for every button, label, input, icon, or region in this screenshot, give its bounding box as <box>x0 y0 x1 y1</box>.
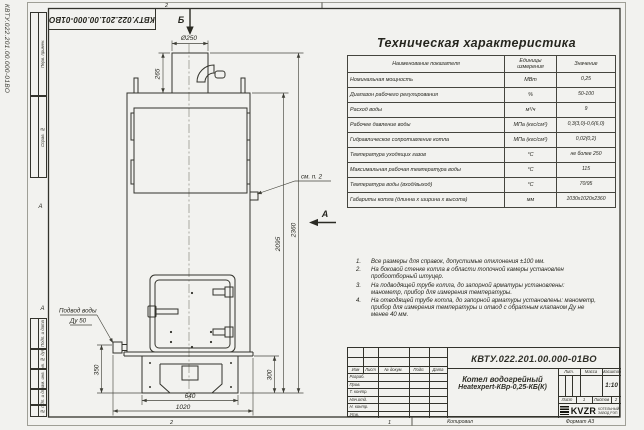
tb-lit-label: Лит. <box>558 368 580 375</box>
spec-units: °С <box>505 148 557 163</box>
spec-value: 0,3(3,0)-0,6(6,0) <box>557 118 616 133</box>
tb-row-razrab: Разраб. <box>348 373 380 381</box>
spec-row: Номинальная мощностьМВт0,25 <box>348 73 616 88</box>
zone-number-top: 2 <box>164 3 168 9</box>
note-item: 2.На боковой стенке котла в области топо… <box>356 267 596 281</box>
view-arrows <box>186 9 336 226</box>
zone-letter-low: А <box>40 306 45 312</box>
spec-row: Температура уходящих газов°Сне более 250 <box>348 148 616 163</box>
margin-field-label: Перв. примен. <box>39 13 46 95</box>
leader-lines <box>60 181 331 343</box>
upper-panel <box>134 108 247 193</box>
spec-name: Температура воды (вход/выход) <box>348 178 505 193</box>
boiler-body <box>127 93 250 352</box>
base-opening <box>160 364 222 393</box>
tb-col-data: Дата <box>429 366 447 373</box>
spec-name: Максимальная рабочая температура воды <box>348 163 505 178</box>
spec-units: мм <box>505 193 557 208</box>
spec-units: °С <box>505 163 557 178</box>
margin-field-label: Инв. № подл. <box>39 406 46 416</box>
spec-value: не более 250 <box>557 148 616 163</box>
door-hinge-bottom <box>213 329 225 335</box>
note-number: 3. <box>356 283 371 297</box>
kvzr-logo-icon <box>560 406 569 415</box>
spec-table-title: Техническая характеристика <box>347 36 606 50</box>
chimney <box>172 53 208 93</box>
base <box>142 356 238 393</box>
tb-sheets-value: 2 <box>611 396 621 403</box>
tb-col-list: Лист <box>363 366 378 373</box>
spec-units: МВт <box>505 73 557 88</box>
spec-units: °С <box>505 178 557 193</box>
rotated-doc-number: КВТУ.022.201.00.000-01ВО <box>49 15 155 24</box>
tb-row-nkontr: Н. контр. <box>348 403 380 411</box>
boiler-front-view <box>113 53 258 393</box>
spec-name: Гидравлическое сопротивление котла <box>348 133 505 148</box>
dim-chimney-height: 265 <box>155 68 162 80</box>
note-item: 3.На подводящей трубе котла, до запорной… <box>356 283 596 297</box>
notes-section: 1.Все размеры для справок, допустимые от… <box>356 259 596 321</box>
drawing-sheet: Ø250 265 2095 2360 350 300 640 1020 см. … <box>0 0 644 430</box>
tb-product-line2: Heatexpert-КВр-0,25-КБ(К) <box>458 384 547 393</box>
margin-field-label: Взам. инв. № <box>39 370 46 388</box>
spec-row: Температура воды (вход/выход)°С70/95 <box>348 178 616 193</box>
water-inlet-pipe <box>122 345 127 351</box>
tb-row-utv: Утв. <box>348 411 380 419</box>
spec-table: Наименование показателя Единицы измерени… <box>347 55 616 208</box>
spec-value: 0,02(0,2) <box>557 133 616 148</box>
dim-body-height: 2095 <box>275 236 282 252</box>
spec-value: 9 <box>557 103 616 118</box>
spec-value: 1030х1020х2360 <box>557 193 616 208</box>
tb-scale-value: 1:10 <box>602 375 621 396</box>
note-item: 4.На отводящей трубе котла, до запорной … <box>356 298 596 320</box>
copied-label: Копировал <box>420 419 500 425</box>
title-block: Изм Лист № докум. Подп. Дата Разраб. Про… <box>347 347 620 417</box>
extension-lines <box>97 41 304 416</box>
format-label: Формат А3 <box>540 419 620 425</box>
spec-name: Рабочее давление воды <box>348 118 505 133</box>
note-text: На подводящей трубе котла, до запорной а… <box>371 283 596 297</box>
note-text: На отводящей трубе котла, до запорной ар… <box>371 298 596 320</box>
tb-product-name: Котел водогрейный Heatexpert-КВр-0,25-КБ… <box>447 368 558 400</box>
zone-number-bottom-right: 1 <box>388 420 391 426</box>
note-text: На боковой стенке котла в области топочн… <box>371 267 596 281</box>
dim-base-width: 640 <box>185 393 196 400</box>
note-number: 2. <box>356 267 371 281</box>
margin-field-inv-dubl: Инв. № дубл. <box>30 349 47 369</box>
chimney-elbow <box>197 65 214 82</box>
tb-sheets-label: Листов <box>592 396 611 403</box>
lifting-lug-left <box>134 78 138 93</box>
spec-value: 50-100 <box>557 88 616 103</box>
spec-name: Номинальная мощность <box>348 73 505 88</box>
spec-name: Диапазон рабочего регулирования <box>348 88 505 103</box>
margin-field-label: Подп. и дата <box>39 390 46 404</box>
side-doc-number: КВТУ.022.201.00.000-01ВО <box>3 4 10 93</box>
door-hinge-top <box>213 289 225 295</box>
spec-col-units: Единицы измерения <box>505 56 557 73</box>
door-hinge-bottom <box>225 327 233 337</box>
spec-value: 0,25 <box>557 73 616 88</box>
note-number: 4. <box>356 298 371 320</box>
rotated-doc-number-box: КВТУ.022.201.00.000-01ВО <box>48 8 156 30</box>
margin-field-sprav-no: Справ. № <box>30 96 47 178</box>
margin-field-inv-podl: Инв. № подл. <box>30 405 47 417</box>
spec-units: м³/ч <box>505 103 557 118</box>
spec-value: 70/95 <box>557 178 616 193</box>
spec-units: МПа (кгс/см²) <box>505 118 557 133</box>
spec-row: Гидравлическое сопротивление котлаМПа (к… <box>348 133 616 148</box>
spec-col-name: Наименование показателя <box>348 56 505 73</box>
note-text: Все размеры для справок, допустимые откл… <box>371 259 596 266</box>
bolt-dots <box>149 292 232 388</box>
spec-row: Габариты котла (длинна х ширина х высота… <box>348 193 616 208</box>
tb-col-docnum: № докум. <box>378 366 409 373</box>
blower-door <box>182 366 198 380</box>
note-number: 1. <box>356 259 371 266</box>
tb-sheet-label: Лист <box>558 396 576 403</box>
margin-field-vzam-inv: Взам. инв. № <box>30 369 47 389</box>
elbow-knob <box>215 71 225 78</box>
dim-boiler-width: 1020 <box>176 404 191 411</box>
spec-name: Расход воды <box>348 103 505 118</box>
margin-field-podp-data-1: Подп. и дата <box>30 318 47 349</box>
zone-number-bottom-left: 2 <box>169 420 173 426</box>
spec-name: Габариты котла (длинна х ширина х высота… <box>348 193 505 208</box>
dim-base-height: 300 <box>267 369 274 380</box>
spec-units: МПа (кгс/см²) <box>505 133 557 148</box>
zone-letter-mid: А <box>38 204 43 210</box>
panel-hinge <box>131 113 134 140</box>
skirt <box>124 352 253 356</box>
tb-product-line1: Котел водогрейный <box>462 375 543 385</box>
tb-sheet-value: 1 <box>576 396 592 403</box>
spec-table-section: Техническая характеристика Наименование … <box>347 36 606 208</box>
tb-scale-label: Масштаб <box>602 368 621 375</box>
tb-mass-label: Масса <box>580 368 602 375</box>
door-handle <box>156 309 178 314</box>
spec-units: % <box>505 88 557 103</box>
kvzr-logo-text: KVZR <box>571 406 596 416</box>
door-hinge-top <box>225 287 233 297</box>
note-item: 1.Все размеры для справок, допустимые от… <box>356 259 596 266</box>
tb-row-tkontr: Т. контр. <box>348 388 380 396</box>
dim-total-height: 2360 <box>291 222 298 238</box>
spec-row: Расход водым³/ч9 <box>348 103 616 118</box>
company-name-line1: КОТЕЛЬНЫЙ <box>598 407 619 411</box>
margin-field-perv-primen: Перв. примен. <box>30 12 47 96</box>
water-inlet-fitting <box>113 342 122 353</box>
panel-hinge <box>247 113 250 140</box>
margin-field-label: Подп. и дата <box>39 319 46 348</box>
dim-chimney-diameter: Ø250 <box>180 35 197 42</box>
sampling-fitting <box>250 192 258 200</box>
spec-name: Температура уходящих газов <box>348 148 505 163</box>
spec-value: 115 <box>557 163 616 178</box>
lifting-lug-right <box>241 78 245 93</box>
view-label-b: Б <box>178 15 185 25</box>
callout-see-note: см. п. 2 <box>301 174 323 181</box>
panel-hinge <box>247 160 250 184</box>
spec-row: Рабочее давление водыМПа (кгс/см²)0,3(3,… <box>348 118 616 133</box>
tb-row-nachotd: Нач.отд. <box>348 396 380 404</box>
company-name-line2: ЗАВОД РЭП <box>598 411 619 415</box>
callout-water-supply: Подвод воды <box>59 308 97 315</box>
panel-hinge <box>131 160 134 184</box>
company-name: КОТЕЛЬНЫЙ ЗАВОД РЭП <box>598 407 619 415</box>
tb-col-izm: Изм <box>348 366 363 373</box>
spec-col-value: Значение <box>557 56 616 73</box>
company-logo-cell: KVZR КОТЕЛЬНЫЙ ЗАВОД РЭП <box>558 403 621 418</box>
tb-row-prov: Пров. <box>348 381 380 389</box>
tb-col-podp: Подп. <box>409 366 429 373</box>
margin-field-podp-data-2: Подп. и дата <box>30 389 47 405</box>
view-label-a: А <box>321 209 329 219</box>
margin-field-label: Инв. № дубл. <box>39 350 46 368</box>
tb-doc-number: КВТУ.022.201.00.000-01ВО <box>447 348 621 368</box>
dim-inlet-height: 350 <box>94 364 101 375</box>
margin-field-label: Справ. № <box>39 97 46 177</box>
callout-water-dn: Ду 50 <box>69 318 87 325</box>
spec-row: Максимальная рабочая температура воды°С1… <box>348 163 616 178</box>
spec-row: Диапазон рабочего регулирования%50-100 <box>348 88 616 103</box>
